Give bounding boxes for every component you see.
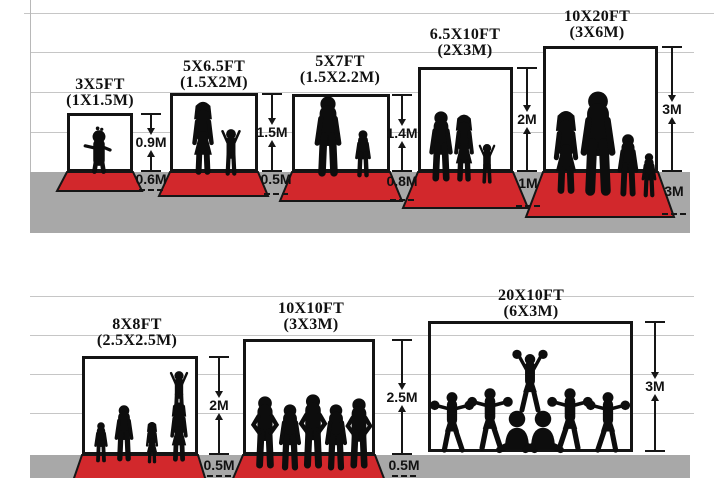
- panel-title-5x6.5ft: 5X6.5FT (1.5X2M): [154, 59, 274, 91]
- dim-tick: [662, 170, 682, 172]
- backdrop-frame-3x5ft: [67, 113, 133, 172]
- dim-label: 2M: [209, 398, 228, 413]
- dim-label: 0.6M: [135, 172, 166, 187]
- dim-backdrop-height-10x10ft: 2.5M: [380, 339, 424, 455]
- dim-label: 3M: [664, 184, 683, 199]
- size-feet: 8X8FT: [77, 317, 197, 333]
- dim-label: 0.5M: [388, 458, 419, 473]
- size-feet: 10X10FT: [251, 301, 371, 317]
- backdrop-frame-20x10ft: [428, 321, 633, 452]
- arrow-up-icon: [215, 413, 223, 420]
- dim-floor-depth-8x8ft: 0.5M: [197, 458, 241, 477]
- panel-title-3x5ft: 3X5FT (1X1.5M): [40, 77, 160, 109]
- panel-title-10x20ft: 10X20FT (3X6M): [537, 9, 657, 41]
- size-comparison-diagram: 3X5FT (1X1.5M) 5X6.5FT (1.5X2M) 5X7FT (1…: [0, 0, 720, 478]
- dim-dash: [516, 205, 540, 207]
- size-meters: (2.5X2.5M): [77, 333, 197, 349]
- backdrop-frame-5x6.5ft: [170, 93, 258, 172]
- arrow-up-icon: [147, 150, 155, 157]
- arrow-up-icon: [268, 140, 276, 147]
- size-meters: (1.5X2.2M): [280, 70, 400, 86]
- dim-backdrop-height-5x7ft: 1.4M: [380, 94, 424, 172]
- arrow-up-icon: [651, 394, 659, 401]
- panel-title-20x10ft: 20X10FT (6X3M): [471, 288, 591, 320]
- backdrop-frame-6.5x10ft: [418, 67, 513, 172]
- dim-label: 3M: [645, 379, 664, 394]
- dim-tick: [392, 453, 412, 455]
- dim-backdrop-height-5x6.5ft: 1.5M: [250, 93, 294, 172]
- size-meters: (1X1.5M): [40, 93, 160, 109]
- dim-floor-depth-10x20ft: 3M: [652, 184, 696, 215]
- dim-backdrop-height-10x20ft: 3M: [650, 46, 694, 172]
- backdrop-frame-10x20ft: [543, 46, 658, 172]
- dim-tick: [392, 170, 412, 172]
- dim-dash: [139, 189, 163, 191]
- panel-title-5x7ft: 5X7FT (1.5X2.2M): [280, 54, 400, 86]
- dim-label: 1M: [518, 176, 537, 191]
- size-meters: (3X3M): [251, 317, 371, 333]
- size-meters: (3X6M): [537, 25, 657, 41]
- dim-label: 0.9M: [135, 135, 166, 150]
- panel-title-10x10ft: 10X10FT (3X3M): [251, 301, 371, 333]
- size-feet: 5X7FT: [280, 54, 400, 70]
- backdrop-frame-8x8ft: [82, 356, 198, 455]
- dim-backdrop-height-3x5ft: 0.9M: [129, 113, 173, 172]
- dim-backdrop-height-20x10ft: 3M: [633, 321, 677, 452]
- dim-dash: [207, 475, 231, 477]
- guide-line: [30, 296, 694, 297]
- dim-label: 3M: [662, 102, 681, 117]
- backdrop-frame-5x7ft: [292, 94, 390, 172]
- dim-dash: [390, 199, 414, 201]
- dim-dash: [264, 193, 288, 195]
- dim-label: 1.5M: [256, 125, 287, 140]
- dim-floor-depth-3x5ft: 0.6M: [129, 172, 173, 191]
- size-meters: (2X3M): [405, 43, 525, 59]
- panel-title-8x8ft: 8X8FT (2.5X2.5M): [77, 317, 197, 349]
- dim-tick: [645, 450, 665, 452]
- dim-label: 2.5M: [386, 390, 417, 405]
- arrow-up-icon: [398, 141, 406, 148]
- arrow-up-icon: [523, 127, 531, 134]
- backdrop-frame-10x10ft: [243, 339, 375, 455]
- dim-dash: [392, 475, 416, 477]
- dim-label: 1.4M: [386, 126, 417, 141]
- size-feet: 6.5X10FT: [405, 27, 525, 43]
- dim-label: 0.5M: [260, 172, 291, 187]
- size-feet: 10X20FT: [537, 9, 657, 25]
- left-border-line: [30, 0, 31, 172]
- ground-band-bottom-row: [30, 455, 690, 478]
- size-feet: 20X10FT: [471, 288, 591, 304]
- dim-backdrop-height-8x8ft: 2M: [197, 356, 241, 455]
- size-feet: 5X6.5FT: [154, 59, 274, 75]
- dim-dash: [662, 213, 686, 215]
- size-meters: (6X3M): [471, 304, 591, 320]
- dim-label: 2M: [517, 112, 536, 127]
- dim-backdrop-height-6.5x10ft: 2M: [505, 67, 549, 172]
- dim-label: 0.8M: [386, 174, 417, 189]
- size-meters: (1.5X2M): [154, 75, 274, 91]
- dim-floor-depth-6.5x10ft: 1M: [506, 176, 550, 207]
- panel-title-6.5x10ft: 6.5X10FT (2X3M): [405, 27, 525, 59]
- size-feet: 3X5FT: [40, 77, 160, 93]
- dim-floor-depth-5x6.5ft: 0.5M: [254, 172, 298, 195]
- arrow-up-icon: [668, 117, 676, 124]
- arrow-up-icon: [398, 405, 406, 412]
- dim-label: 0.5M: [203, 458, 234, 473]
- dim-tick: [209, 453, 229, 455]
- dim-floor-depth-5x7ft: 0.8M: [380, 174, 424, 201]
- dim-tick: [517, 170, 537, 172]
- dim-floor-depth-10x10ft: 0.5M: [382, 458, 426, 477]
